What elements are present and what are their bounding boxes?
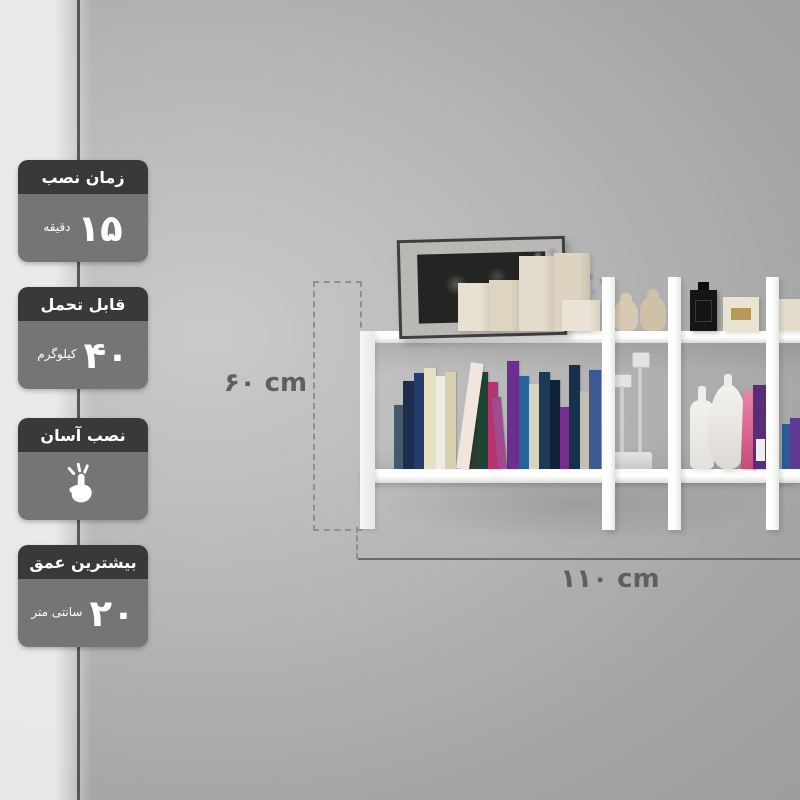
badge-hanging-line: [77, 0, 80, 800]
book-spine: [560, 407, 569, 469]
book-spine: [507, 361, 519, 469]
badge-install-time-body: ۱۵ دقیقه: [18, 194, 148, 262]
badge-easy-install-body: [18, 452, 148, 520]
max-depth-value: ۲۰: [90, 595, 135, 632]
shelf-divider: [766, 277, 779, 530]
gift-box: [562, 300, 600, 331]
book-spine: [550, 380, 560, 469]
gift-box: [458, 283, 490, 331]
badge-easy-install: نصب آسان: [18, 418, 148, 520]
badge-load-capacity-body: ۴۰ کیلوگرم: [18, 321, 148, 389]
load-capacity-unit: کیلوگرم: [37, 348, 76, 361]
dimension-extension-line: [356, 527, 358, 559]
height-dimension-bracket: [313, 281, 362, 531]
cream-perfume-box: [723, 297, 759, 331]
load-capacity-value: ۴۰: [84, 337, 129, 374]
badge-easy-install-header: نصب آسان: [18, 418, 148, 452]
max-depth-unit: سانتی متر: [31, 606, 82, 619]
width-dimension-label: ۱۱۰ cm: [510, 564, 710, 594]
height-dimension-label: ۶۰ cm: [218, 368, 313, 398]
book-spine: [529, 384, 539, 469]
book-spine: [403, 381, 414, 469]
shelf-bottom-board: [362, 469, 800, 483]
badge-load-capacity-header: قابل تحمل: [18, 287, 148, 321]
black-perfume-bottle: [690, 290, 717, 331]
book-spine: [436, 376, 445, 469]
badge-install-time-header: زمان نصب: [18, 160, 148, 194]
gift-box: [519, 256, 554, 331]
install-time-unit: دقیقه: [43, 221, 70, 234]
book-spine: [424, 368, 436, 469]
snap-fingers-icon: [58, 459, 108, 513]
book-spine: [589, 370, 601, 469]
book-spine: [414, 373, 424, 469]
figurine: [614, 300, 638, 331]
gift-box: [489, 280, 520, 331]
candle-stem: [638, 366, 642, 454]
product-infographic: زمان نصب ۱۵ دقیقه قابل تحمل ۴۰ کیلوگرم ن…: [0, 0, 800, 800]
figurine: [640, 296, 666, 331]
shelf-left-panel: [360, 331, 375, 529]
shelf-divider: [668, 277, 681, 530]
book-spine: [519, 376, 529, 469]
edge-book: [790, 418, 800, 469]
badge-max-depth: بیشترین عمق ۲۰ سانتی متر: [18, 545, 148, 647]
badge-max-depth-body: ۲۰ سانتی متر: [18, 579, 148, 647]
install-time-value: ۱۵: [78, 210, 123, 247]
candle-stem: [620, 386, 624, 454]
book-spine: [569, 365, 580, 469]
shelf-divider: [602, 277, 615, 530]
book-spine: [445, 372, 456, 469]
book-row: [394, 361, 604, 469]
book-spine: [394, 405, 403, 469]
badge-install-time: زمان نصب ۱۵ دقیقه: [18, 160, 148, 262]
badge-max-depth-header: بیشترین عمق: [18, 545, 148, 579]
width-dimension-line: [358, 558, 800, 560]
book-spine: [580, 391, 589, 469]
book-spine: [539, 372, 550, 469]
badge-load-capacity: قابل تحمل ۴۰ کیلوگرم: [18, 287, 148, 389]
